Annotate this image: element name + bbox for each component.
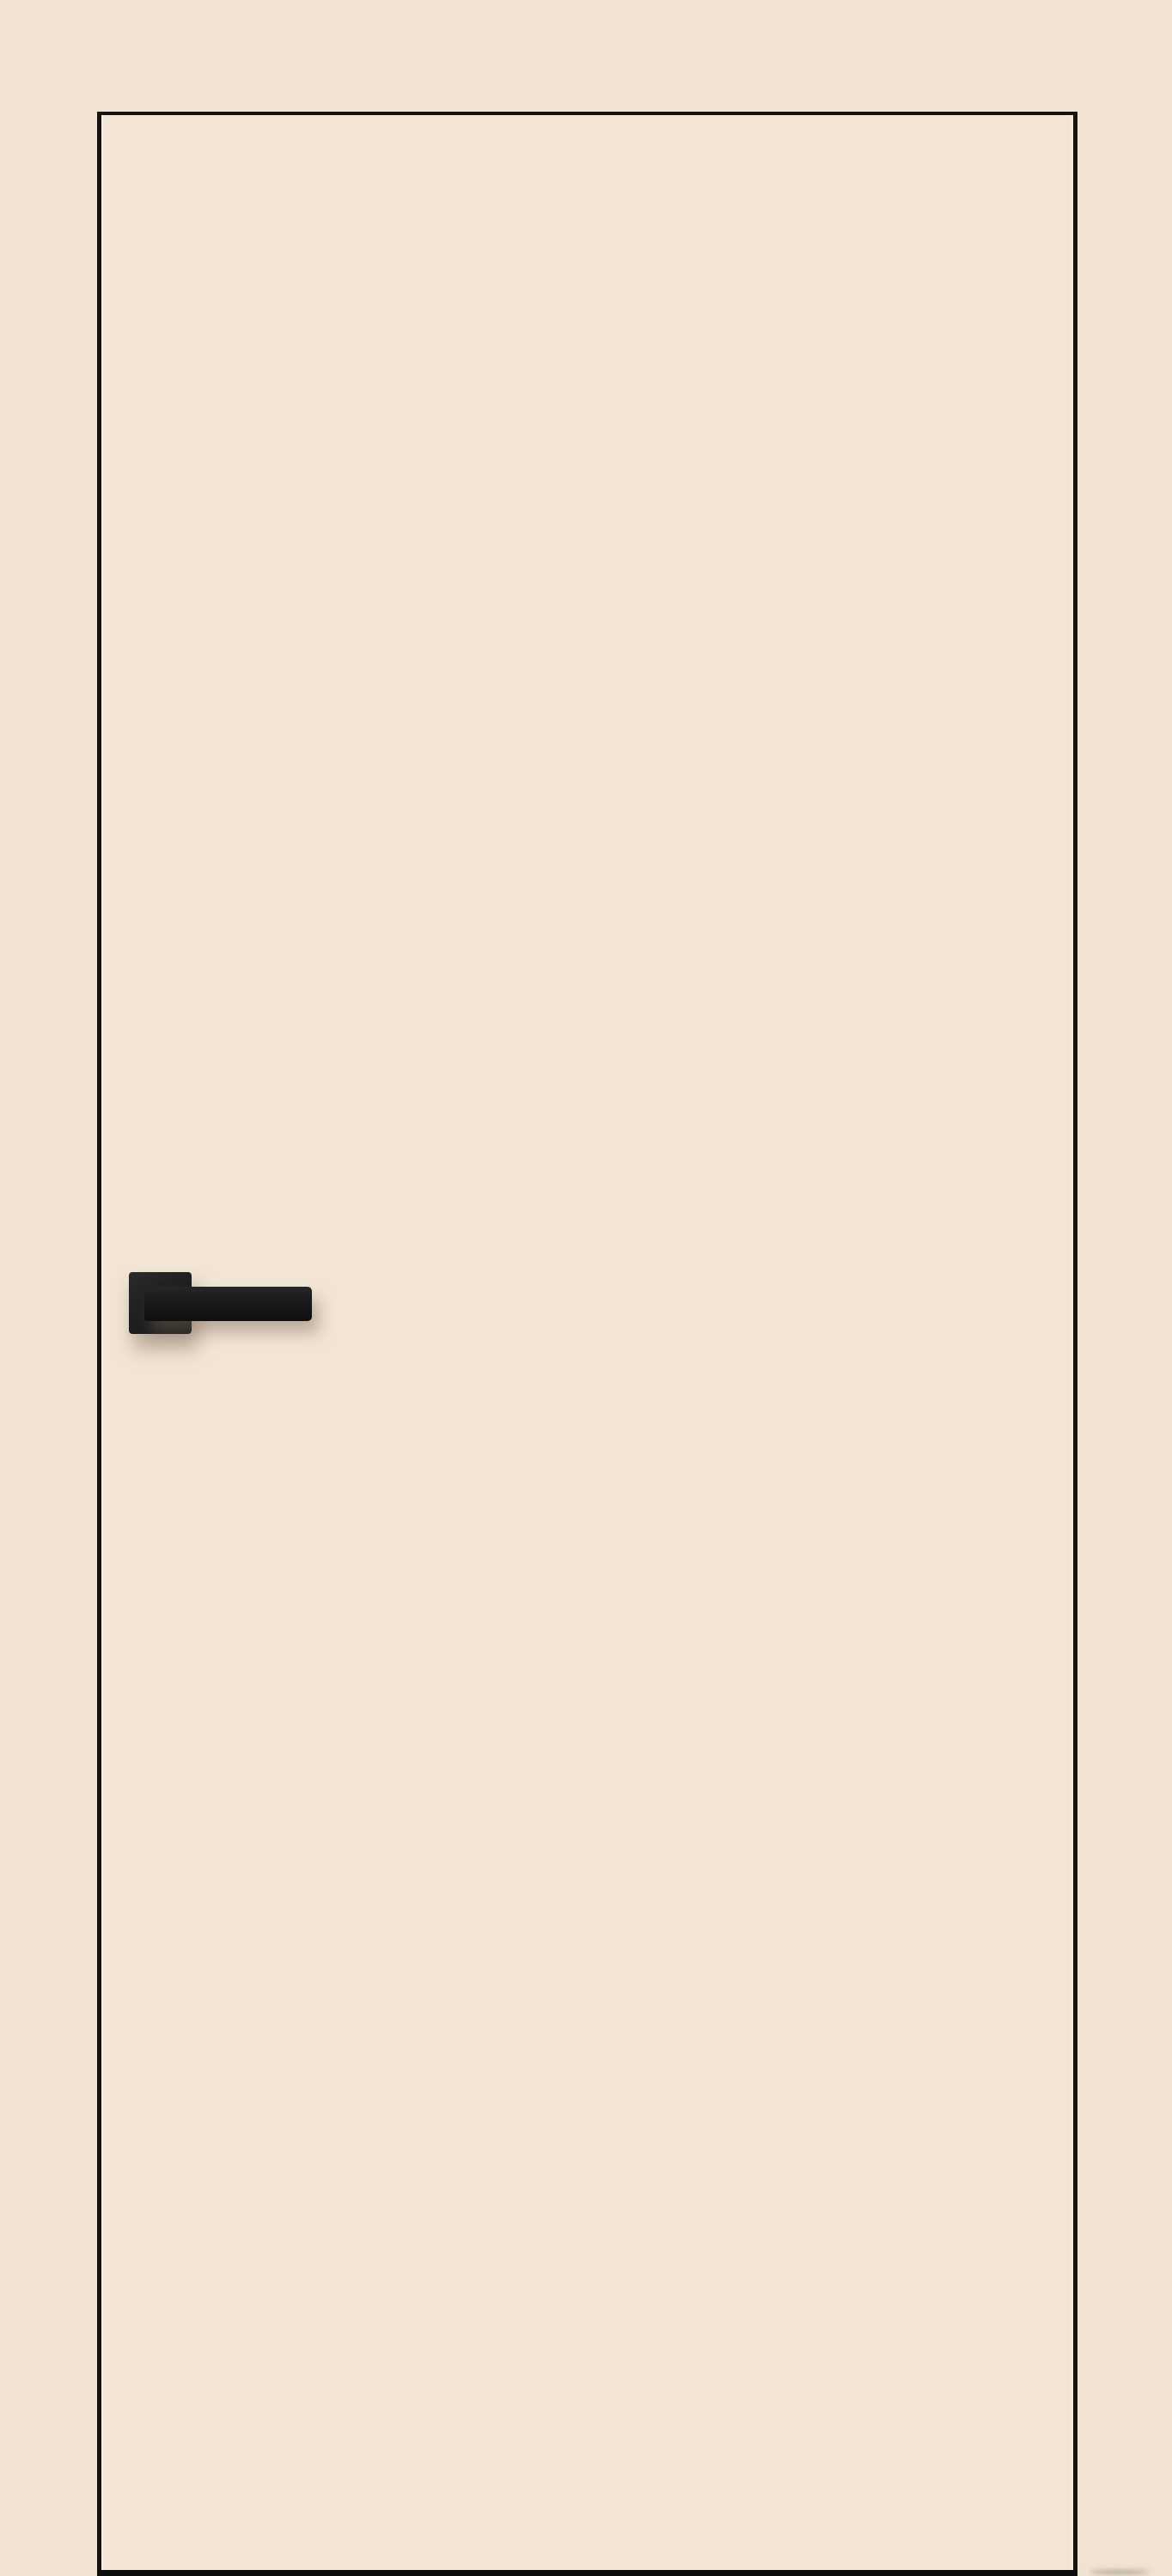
door-bottom-edge bbox=[97, 2570, 1077, 2576]
door-edge-right bbox=[1073, 112, 1077, 2576]
door-panel bbox=[97, 112, 1077, 2576]
door-face-highlight bbox=[101, 115, 1073, 2570]
door-edge-left bbox=[97, 112, 101, 2576]
door-edge-top bbox=[97, 112, 1077, 115]
handle-lever bbox=[144, 1287, 312, 1321]
wall-background bbox=[0, 0, 1172, 2576]
floor-shadow bbox=[1090, 2570, 1150, 2574]
